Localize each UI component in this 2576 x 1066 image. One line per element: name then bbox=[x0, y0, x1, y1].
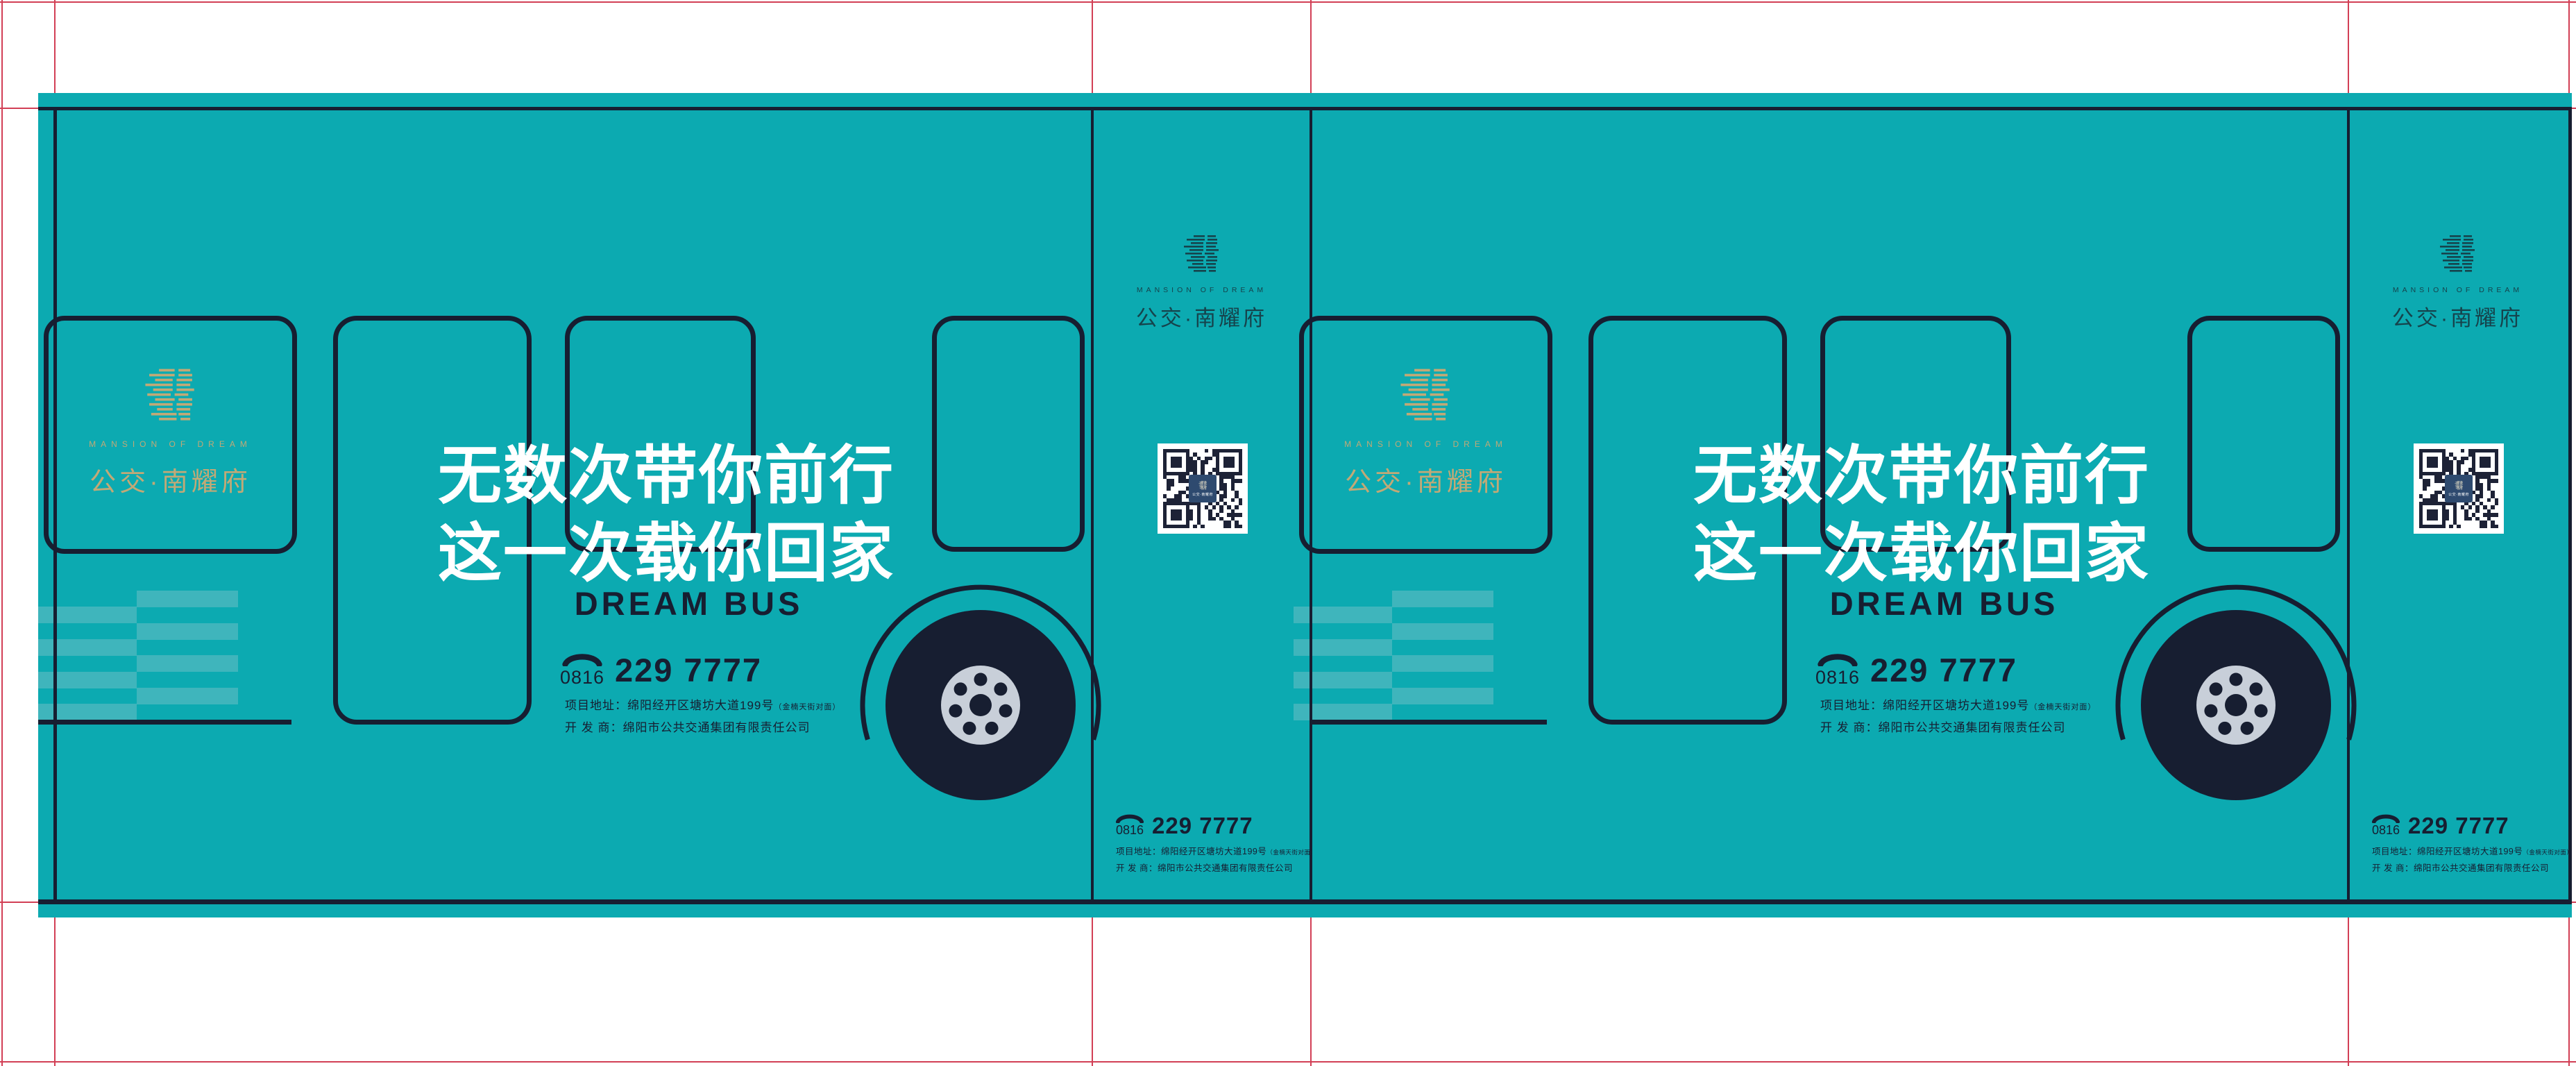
developer-line: 开 发 商：绵阳市公共交通集团有限责任公司 bbox=[1820, 718, 2096, 735]
brand-name-cn: 公交·南耀府 bbox=[2348, 301, 2567, 332]
end-cap-strip-right: MANSION OF DREAM 公交·南耀府 公交·南耀府 0816 229 … bbox=[2348, 0, 2567, 1066]
mansion-lines-icon bbox=[1395, 366, 1457, 426]
phone-area-code: 0816 bbox=[1815, 667, 1860, 688]
project-address: 项目地址：绵阳经开区塘坊大道199号（金楠天街对面） bbox=[1116, 844, 1316, 857]
bus-window-rear bbox=[932, 316, 1085, 552]
end-cap-strip-middle: MANSION OF DREAM 公交·南耀府 公交·南耀府 0816 229 … bbox=[1092, 0, 1311, 1066]
vent-stripe-bar bbox=[137, 623, 238, 640]
project-address: 项目地址：绵阳经开区塘坊大道199号（金楠天街对面） bbox=[2372, 844, 2573, 857]
headline-line1: 无数次带你前行 bbox=[1672, 437, 2171, 515]
phone-handset-icon bbox=[2371, 813, 2400, 823]
hub-center bbox=[2225, 694, 2247, 716]
headline-line1: 无数次带你前行 bbox=[416, 437, 916, 515]
brand-name-en: MANSION OF DREAM bbox=[44, 439, 297, 449]
vent-stripe-bar bbox=[137, 688, 238, 704]
phone-row: 0816 229 7777 bbox=[1114, 813, 1316, 839]
qr-badge-label: 公交·南耀府 bbox=[2448, 492, 2469, 497]
vent-stripes bbox=[1294, 591, 1493, 720]
address-note: （金楠天街对面） bbox=[1266, 849, 1316, 856]
vent-stripe-bar bbox=[1392, 591, 1493, 607]
developer-line: 开 发 商：绵阳市公共交通集团有限责任公司 bbox=[2372, 861, 2573, 874]
bus-left-edge-line bbox=[53, 107, 57, 904]
brand-name-cn: 公交·南耀府 bbox=[44, 460, 297, 498]
contact-block: 0816 229 7777 项目地址：绵阳经开区塘坊大道199号（金楠天街对面）… bbox=[1815, 652, 2096, 735]
phone-handset-icon bbox=[561, 652, 604, 666]
brand-name-cn: 公交·南耀府 bbox=[1299, 460, 1552, 498]
phone-number: 229 7777 bbox=[1152, 813, 1253, 839]
bus-ad-print-layout: MANSION OF DREAM 公交·南耀府 无数次带你前行 这一次载你回家 … bbox=[0, 0, 2576, 1066]
phone-row: 0816 229 7777 bbox=[1815, 652, 2096, 689]
brand-logo-dark: MANSION OF DREAM 公交·南耀府 bbox=[2348, 233, 2567, 332]
contact-block: 0816 229 7777 项目地址：绵阳经开区塘坊大道199号（金楠天街对面）… bbox=[559, 652, 840, 735]
bus-skirt-line bbox=[1310, 720, 1547, 725]
phone-area-code: 0816 bbox=[560, 667, 604, 688]
phone-area-code: 0816 bbox=[2372, 823, 2400, 838]
developer-line: 开 发 商：绵阳市公共交通集团有限责任公司 bbox=[565, 718, 840, 735]
subtitle-dream-bus: DREAM BUS bbox=[527, 584, 850, 623]
qr-code: 公交·南耀府 bbox=[2414, 443, 2504, 534]
bus-right-edge-line bbox=[2568, 107, 2572, 904]
qr-code: 公交·南耀府 bbox=[1158, 443, 1248, 534]
phone-handset-icon bbox=[1816, 652, 1859, 666]
contact-block-small: 0816 229 7777 项目地址：绵阳经开区塘坊大道199号（金楠天街对面）… bbox=[1114, 813, 1316, 874]
headline: 无数次带你前行 这一次载你回家 bbox=[1672, 437, 2171, 593]
vent-stripe-bar bbox=[1392, 688, 1493, 704]
phone-number: 229 7777 bbox=[1870, 651, 2017, 689]
vent-stripe-bar bbox=[137, 655, 238, 672]
project-address: 项目地址：绵阳经开区塘坊大道199号（金楠天街对面） bbox=[1820, 695, 2096, 713]
developer-line: 开 发 商：绵阳市公共交通集团有限责任公司 bbox=[1116, 861, 1316, 874]
phone-number: 229 7777 bbox=[615, 651, 762, 689]
phone-handset-icon bbox=[1115, 813, 1144, 823]
phone-row: 0816 229 7777 bbox=[559, 652, 840, 689]
headline: 无数次带你前行 这一次载你回家 bbox=[416, 437, 916, 593]
project-address: 项目地址：绵阳经开区塘坊大道199号（金楠天街对面） bbox=[565, 695, 840, 713]
brand-logo-gold: MANSION OF DREAM 公交·南耀府 bbox=[1299, 366, 1552, 498]
bus-side-panel-left: MANSION OF DREAM 公交·南耀府 无数次带你前行 这一次载你回家 … bbox=[0, 0, 1256, 1066]
mansion-lines-icon bbox=[1180, 233, 1224, 276]
mansion-lines-icon bbox=[2436, 233, 2480, 276]
address-note: （金楠天街对面） bbox=[774, 703, 840, 711]
vent-stripe-bar bbox=[1392, 623, 1493, 640]
bus-window-rear bbox=[2187, 316, 2340, 552]
bus-side-panel-right: MANSION OF DREAM 公交·南耀府 无数次带你前行 这一次载你回家 … bbox=[1255, 0, 2511, 1066]
brand-logo-gold: MANSION OF DREAM 公交·南耀府 bbox=[44, 366, 297, 498]
address-note: （金楠天街对面） bbox=[2523, 849, 2573, 856]
mansion-lines-icon bbox=[139, 366, 202, 426]
phone-row: 0816 229 7777 bbox=[2370, 813, 2573, 839]
vent-stripe-bar bbox=[137, 591, 238, 607]
brand-name-en: MANSION OF DREAM bbox=[1299, 439, 1552, 449]
mansion-lines-icon bbox=[2454, 480, 2464, 491]
bus-wheel bbox=[2115, 584, 2357, 827]
brand-logo-dark: MANSION OF DREAM 公交·南耀府 bbox=[1092, 233, 1311, 332]
qr-center-badge: 公交·南耀府 bbox=[1189, 475, 1217, 502]
headline-line2: 这一次载你回家 bbox=[416, 515, 916, 593]
phone-area-code: 0816 bbox=[1116, 823, 1144, 838]
phone-number: 229 7777 bbox=[2408, 813, 2509, 839]
bus-wheel bbox=[859, 584, 1102, 827]
qr-center-badge: 公交·南耀府 bbox=[2445, 475, 2473, 502]
brand-name-en: MANSION OF DREAM bbox=[2348, 286, 2567, 294]
bus-skirt-line bbox=[38, 720, 291, 725]
brand-name-en: MANSION OF DREAM bbox=[1092, 286, 1311, 294]
qr-badge-label: 公交·南耀府 bbox=[1192, 492, 1213, 497]
mansion-lines-icon bbox=[1198, 480, 1208, 491]
headline-line2: 这一次载你回家 bbox=[1672, 515, 2171, 593]
address-note: （金楠天街对面） bbox=[2029, 703, 2096, 711]
contact-block-small: 0816 229 7777 项目地址：绵阳经开区塘坊大道199号（金楠天街对面）… bbox=[2370, 813, 2573, 874]
vent-stripe-bar bbox=[1392, 655, 1493, 672]
brand-name-cn: 公交·南耀府 bbox=[1092, 301, 1311, 332]
subtitle-dream-bus: DREAM BUS bbox=[1783, 584, 2105, 623]
hub-center bbox=[969, 694, 992, 716]
vent-stripes bbox=[38, 591, 238, 720]
